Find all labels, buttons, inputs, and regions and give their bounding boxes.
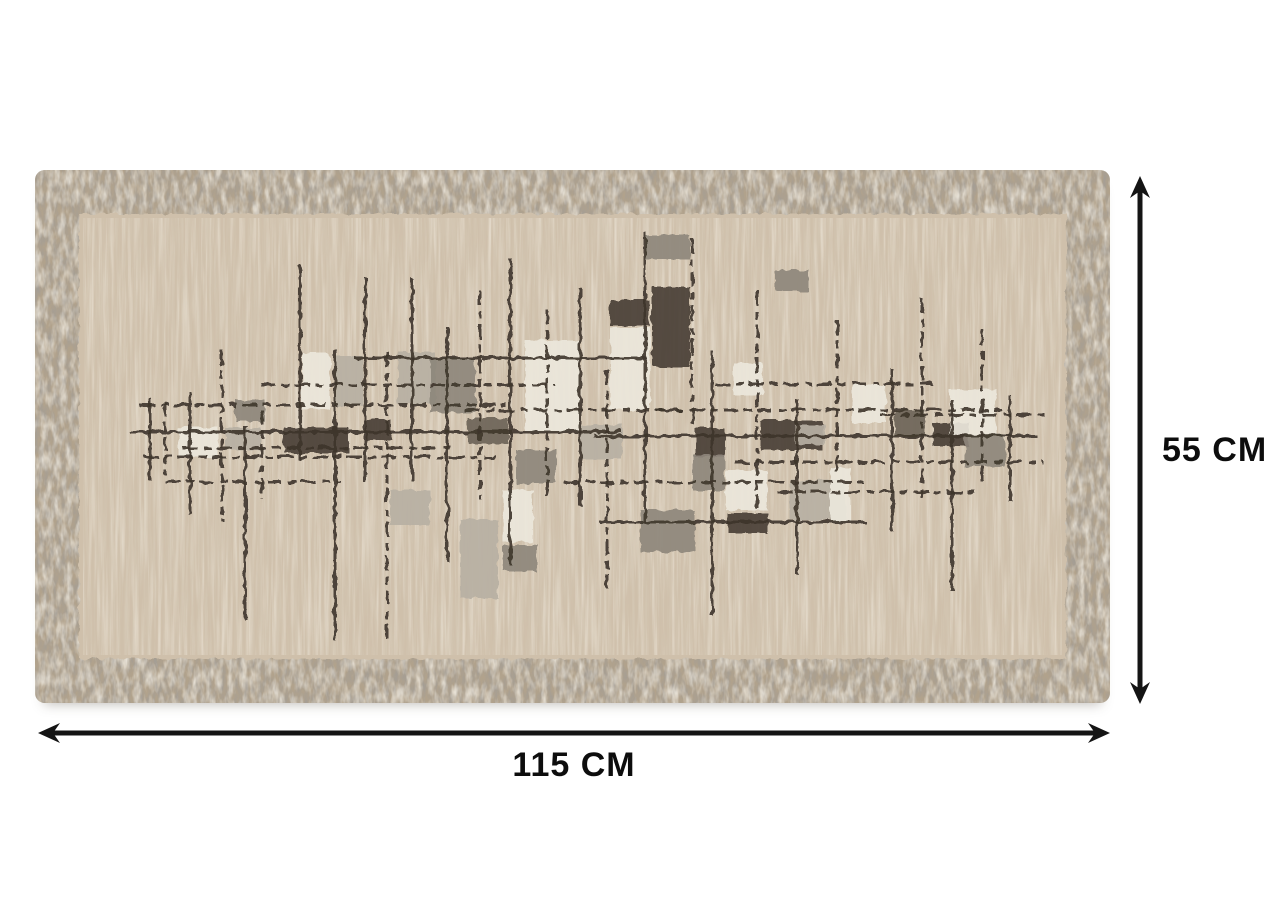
height-arrow: [1126, 172, 1154, 708]
rug-image: [35, 170, 1110, 703]
rug-svg: [35, 170, 1110, 703]
height-label: 55 CM: [1162, 431, 1267, 470]
width-arrow: [34, 719, 1114, 747]
product-dimension-figure: 115 CM 55 CM: [0, 0, 1280, 920]
width-label: 115 CM: [34, 746, 1114, 785]
